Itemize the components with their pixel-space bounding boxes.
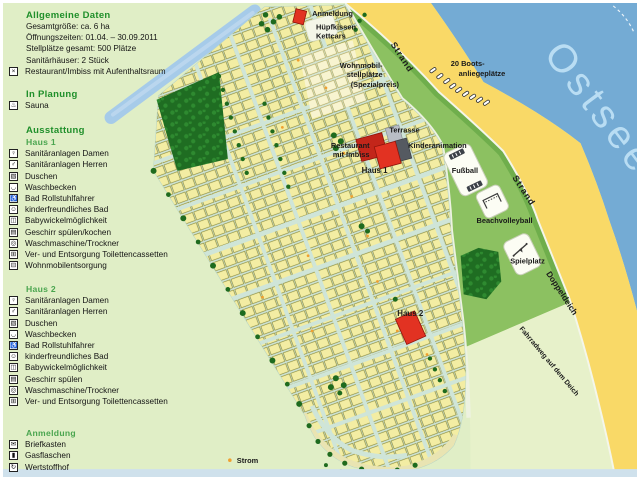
legend-item-geschirr-sp-len-kochen: ▤Geschirr spülen/kochen [9, 226, 224, 237]
map-label-huepfkissen-line2: Kettcars [316, 32, 346, 41]
map-label-huepfkissen-line1: Hüpfkissen [316, 23, 356, 32]
waschmaschine-icon: ◎ [9, 386, 18, 395]
wohnmobilentsorgung-icon: ⊟ [9, 261, 18, 270]
duschen-icon: ▧ [9, 172, 18, 181]
babywickel-icon: ◫ [9, 363, 18, 372]
waschmaschine-icon: ◎ [9, 239, 18, 248]
legend-item-label: Waschbecken [25, 330, 76, 339]
legend-item-label: Babywickelmöglichkeit [25, 363, 107, 372]
legend-item-sanit-ranlagen-damen: ♀Sanitäranlagen Damen [9, 295, 224, 306]
map-label-boots-line2: anliegeplätze [459, 69, 506, 78]
map-label-haus-2: Haus 2 [397, 309, 424, 318]
bad-rollstuhl-icon: ♿ [9, 341, 18, 350]
geschirr-icon: ▤ [9, 228, 18, 237]
legend-item-label: Gesamtgröße: ca. 6 ha [26, 22, 110, 31]
toilettencassetten-icon: ⊞ [9, 397, 18, 406]
legend-item-sanit-ranlagen-herren: ♂Sanitäranlagen Herren [9, 159, 224, 170]
legend-item-label: Sanitäranlagen Damen [25, 296, 109, 305]
legend-heading-allgemeine-daten: Allgemeine Daten [9, 10, 224, 21]
map-label-anmeldung: Anmeldung [312, 9, 353, 18]
legend-item-stellpl-tze-gesamt-500-pl-tze: Stellplätze gesamt: 500 Plätze [9, 43, 224, 54]
campground-map-screenshot: AnmeldungHüpfkissenKettcarsWohnmobil-ste… [0, 0, 640, 480]
waschbecken-icon: ◡ [9, 183, 18, 192]
legend-item-duschen: ▧Duschen [9, 171, 224, 182]
legend-item-ver-und-entsorgung-toilettencassetten: ⊞Ver- und Entsorgung Toilettencassetten [9, 396, 224, 407]
legend-item-label: Geschirr spülen/kochen [25, 228, 111, 237]
legend-item-babywickelm-glichkeit: ◫Babywickelmöglichkeit [9, 215, 224, 226]
map-label-strom-legend: Strom [237, 456, 259, 465]
legend-item-waschmaschine-trockner: ◎Waschmaschine/Trockner [9, 238, 224, 249]
strom-dot [228, 458, 232, 462]
map-label-beachvolleyball: Beachvolleyball [477, 216, 533, 225]
legend-item-babywickelm-glichkeit: ◫Babywickelmöglichkeit [9, 362, 224, 373]
legend-item-wertstoffhof: ↻Wertstoffhof [9, 461, 224, 472]
legend-heading-ausstattung: Ausstattung [9, 125, 224, 136]
legend-item-sanit-rh-user-2-st-ck: Sanitärhäuser: 2 Stück [9, 55, 224, 66]
map-label-terrasse: Terrasse [389, 125, 419, 134]
legend-item-label: Restaurant/Imbiss mit Aufenthaltsraum [25, 67, 166, 76]
duschen-icon: ▧ [9, 319, 18, 328]
legend-item-sauna: ♨Sauna [9, 100, 224, 111]
geschirr-icon: ▤ [9, 375, 18, 384]
map-label-wohnmobil-line2: stellplätze [347, 70, 383, 79]
legend-item-label: Duschen [25, 172, 57, 181]
legend-item-geschirr-sp-len: ▤Geschirr spülen [9, 374, 224, 385]
legend: Allgemeine DatenGesamtgröße: ca. 6 haÖff… [9, 8, 224, 473]
legend-item-label: Gasflaschen [25, 451, 71, 460]
legend-item-label: Sanitäranlagen Damen [25, 149, 109, 158]
legend-item-label: Wertstoffhof [25, 463, 69, 472]
legend-heading-haus-2: Haus 2 [9, 284, 224, 295]
map-label-haus-1: Haus 1 [362, 166, 389, 175]
map-label-kinderanimation: Kinderanimation [408, 141, 467, 150]
legend-item-label: Ver- und Entsorgung Toilettencassetten [25, 397, 168, 406]
legend-item-label: Wohnmobilentsorgung [25, 261, 107, 270]
legend-item-label: Duschen [25, 319, 57, 328]
bad-rollstuhl-icon: ♿ [9, 194, 18, 203]
legend-item-label: Waschmaschine/Trockner [25, 386, 119, 395]
legend-heading-haus-1: Haus 1 [9, 137, 224, 148]
legend-heading-in-planung: In Planung [9, 89, 224, 100]
legend-item-gasflaschen: ▮Gasflaschen [9, 450, 224, 461]
map-label-spielplatz: Spielplatz [510, 257, 545, 266]
legend-item-ffnungszeiten-01-04-30-09-2011: Öffnungszeiten: 01.04. – 30.09.2011 [9, 32, 224, 43]
wertstoffhof-icon: ↻ [9, 463, 18, 472]
legend-item-ver-und-entsorgung-toilettencassetten: ⊞Ver- und Entsorgung Toilettencassetten [9, 249, 224, 260]
legend-item-label: Öffnungszeiten: 01.04. – 30.09.2011 [26, 33, 158, 42]
legend-item-waschbecken: ◡Waschbecken [9, 182, 224, 193]
briefkasten-icon: ✉ [9, 440, 18, 449]
waschbecken-icon: ◡ [9, 330, 18, 339]
toilettencassetten-icon: ⊞ [9, 250, 18, 259]
legend-item-kinderfreundliches-bad: ☺kinderfreundliches Bad [9, 204, 224, 215]
legend-item-label: Stellplätze gesamt: 500 Plätze [26, 44, 136, 53]
legend-item-label: Sanitäranlagen Herren [25, 307, 107, 316]
sanitaer-damen-icon: ♀ [9, 149, 18, 158]
legend-item-duschen: ▧Duschen [9, 318, 224, 329]
legend-item-label: Bad Rollstuhlfahrer [25, 194, 95, 203]
legend-item-sanit-ranlagen-damen: ♀Sanitäranlagen Damen [9, 148, 224, 159]
kinderbad-icon: ☺ [9, 352, 18, 361]
legend-item-label: Briefkasten [25, 440, 66, 449]
legend-item-label: Bad Rollstuhlfahrer [25, 341, 95, 350]
map-label-wohnmobil-line1: Wohnmobil- [340, 61, 383, 70]
legend-heading-anmeldung: Anmeldung [9, 428, 224, 439]
legend-item-label: Sanitärhäuser: 2 Stück [26, 56, 109, 65]
babywickel-icon: ◫ [9, 216, 18, 225]
legend-item-label: Waschmaschine/Trockner [25, 239, 119, 248]
gasflaschen-icon: ▮ [9, 451, 18, 460]
sanitaer-damen-icon: ♀ [9, 296, 18, 305]
map-label-restaurant-line1: Restaurant [331, 141, 370, 150]
legend-item-label: Sanitäranlagen Herren [25, 160, 107, 169]
map-label-boots-line1: 20 Boots- [451, 59, 485, 68]
legend-item-waschmaschine-trockner: ◎Waschmaschine/Trockner [9, 385, 224, 396]
legend-item-kinderfreundliches-bad: ☺kinderfreundliches Bad [9, 351, 224, 362]
restaurant-icon: × [9, 67, 18, 76]
legend-item-bad-rollstuhlfahrer: ♿Bad Rollstuhlfahrer [9, 193, 224, 204]
sauna-icon: ♨ [9, 101, 18, 110]
legend-item-label: Sauna [25, 101, 49, 110]
legend-item-gesamtgr-e-ca-6-ha: Gesamtgröße: ca. 6 ha [9, 21, 224, 32]
sanitaer-herren-icon: ♂ [9, 307, 18, 316]
legend-item-wohnmobilentsorgung: ⊟Wohnmobilentsorgung [9, 260, 224, 271]
map-area: AnmeldungHüpfkissenKettcarsWohnmobil-ste… [3, 3, 637, 477]
legend-item-sanit-ranlagen-herren: ♂Sanitäranlagen Herren [9, 306, 224, 317]
legend-item-label: kinderfreundliches Bad [25, 352, 108, 361]
map-label-fussball: Fußball [452, 166, 478, 175]
sanitaer-herren-icon: ♂ [9, 160, 18, 169]
map-label-restaurant-line2: mit Imbiss [333, 150, 370, 159]
legend-item-label: Geschirr spülen [25, 375, 82, 384]
map-label-wohnmobil-line3: (Spezialpreis) [351, 80, 400, 89]
kinderbad-icon: ☺ [9, 205, 18, 214]
legend-item-label: Ver- und Entsorgung Toilettencassetten [25, 250, 168, 259]
legend-item-briefkasten: ✉Briefkasten [9, 439, 224, 450]
legend-item-waschbecken: ◡Waschbecken [9, 329, 224, 340]
legend-item-label: Babywickelmöglichkeit [25, 216, 107, 225]
legend-item-label: Waschbecken [25, 183, 76, 192]
legend-item-bad-rollstuhlfahrer: ♿Bad Rollstuhlfahrer [9, 340, 224, 351]
legend-item-restaurant-imbiss-mit-aufenthaltsraum: ×Restaurant/Imbiss mit Aufenthaltsraum [9, 66, 224, 77]
legend-item-label: kinderfreundliches Bad [25, 205, 108, 214]
